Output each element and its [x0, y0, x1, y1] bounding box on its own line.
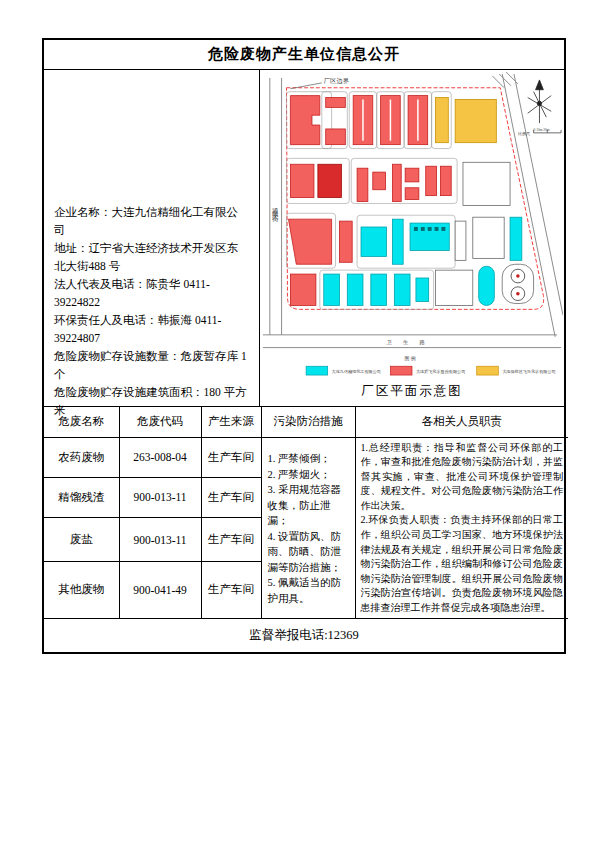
legend-swatch-cyan	[306, 366, 328, 375]
scale-bar: 比例尺 0 10m 20m	[518, 128, 561, 137]
header-responsibilities: 各相关人员职责	[355, 407, 568, 437]
legal-rep-line: 法人代表及电话：陈贵华 0411-39224822	[54, 275, 249, 311]
boundary-label: 厂区边界	[324, 77, 350, 84]
north-arrow-icon	[528, 80, 552, 123]
waste-source-cell: 生产车间	[201, 477, 261, 517]
clarifier-ponds	[502, 264, 533, 303]
waste-name-cell: 废盐	[44, 518, 119, 562]
company-name-line: 企业名称：大连九信精细化工有限公司	[54, 203, 249, 239]
building	[290, 96, 319, 145]
plan-legend: 图 例 大连九信精细化工有限公司 大连辉飞化学股份有限公司 大连保税区飞马化学有…	[306, 355, 556, 375]
waste-source-cell: 生产车间	[201, 518, 261, 562]
waste-code-cell: 900-013-11	[119, 477, 201, 517]
title-row: 危险废物产生单位信息公开	[44, 40, 564, 70]
scale-label: 比例尺	[518, 131, 531, 137]
measures-cell: 1. 严禁倾倒； 2. 严禁烟火； 3. 采用规范容器收集，防止泄漏； 4. 设…	[261, 437, 355, 618]
legend-label-cyan: 大连九信精细化工有限公司	[332, 369, 381, 375]
waste-source-cell: 生产车间	[201, 562, 261, 618]
waste-name-cell: 农药废物	[44, 437, 119, 477]
env-officer-line: 环保责任人及电话：韩振海 0411-39224807	[54, 311, 249, 347]
legend-swatch-red	[390, 366, 412, 375]
bottom-road-label: 卫 生 路	[386, 339, 429, 345]
header-measures: 污染防治措施	[261, 407, 355, 437]
legend-label-red: 大连辉飞化学股份有限公司	[416, 369, 465, 375]
site-plan-caption: 厂区平面示意图	[260, 383, 564, 400]
waste-name-cell: 其他废物	[44, 562, 119, 618]
left-road-label: 通顺大街	[271, 202, 279, 224]
waste-code-cell: 900-041-49	[119, 562, 201, 618]
legend-title: 图 例	[405, 355, 416, 362]
site-plan-drawing: 厂区边界	[261, 71, 563, 383]
waste-name-cell: 精馏残渣	[44, 477, 119, 517]
waste-source-cell: 生产车间	[201, 437, 261, 477]
waste-code-cell: 900-013-11	[119, 518, 201, 562]
main-row: 企业名称：大连九信精细化工有限公司 地址：辽宁省大连经济技术开发区东北大街488…	[44, 70, 564, 407]
disclosure-document: 危险废物产生单位信息公开 企业名称：大连九信精细化工有限公司 地址：辽宁省大连经…	[42, 38, 566, 654]
site-plan-cell: 厂区边界	[260, 70, 564, 406]
storage-count-line: 危险废物贮存设施数量：危废暂存库 1 个	[54, 347, 249, 383]
report-hotline: 监督举报电话:12369	[44, 619, 564, 652]
table-row: 农药废物 263-008-04 生产车间 1. 严禁倾倒； 2. 严禁烟火； 3…	[44, 437, 568, 477]
page-title: 危险废物产生单位信息公开	[208, 45, 400, 64]
tank-building	[479, 266, 495, 305]
company-address-line: 地址：辽宁省大连经济技术开发区东北大街488 号	[54, 239, 249, 275]
waste-code-cell: 263-008-04	[119, 437, 201, 477]
buildings-layer	[288, 96, 533, 306]
company-info-cell: 企业名称：大连九信精细化工有限公司 地址：辽宁省大连经济技术开发区东北大街488…	[44, 70, 260, 406]
responsibilities-cell: 1.总经理职责：指导和监督公司环保部的工作，审查和批准危险废物污染防治计划，并监…	[355, 437, 568, 618]
waste-table: 危废名称 危废代码 产生来源 污染防治措施 各相关人员职责 农药废物 263-0…	[44, 407, 568, 619]
legend-label-yellow: 大连保税区飞马化学有限公司	[502, 369, 555, 374]
legend-swatch-yellow	[477, 366, 499, 375]
